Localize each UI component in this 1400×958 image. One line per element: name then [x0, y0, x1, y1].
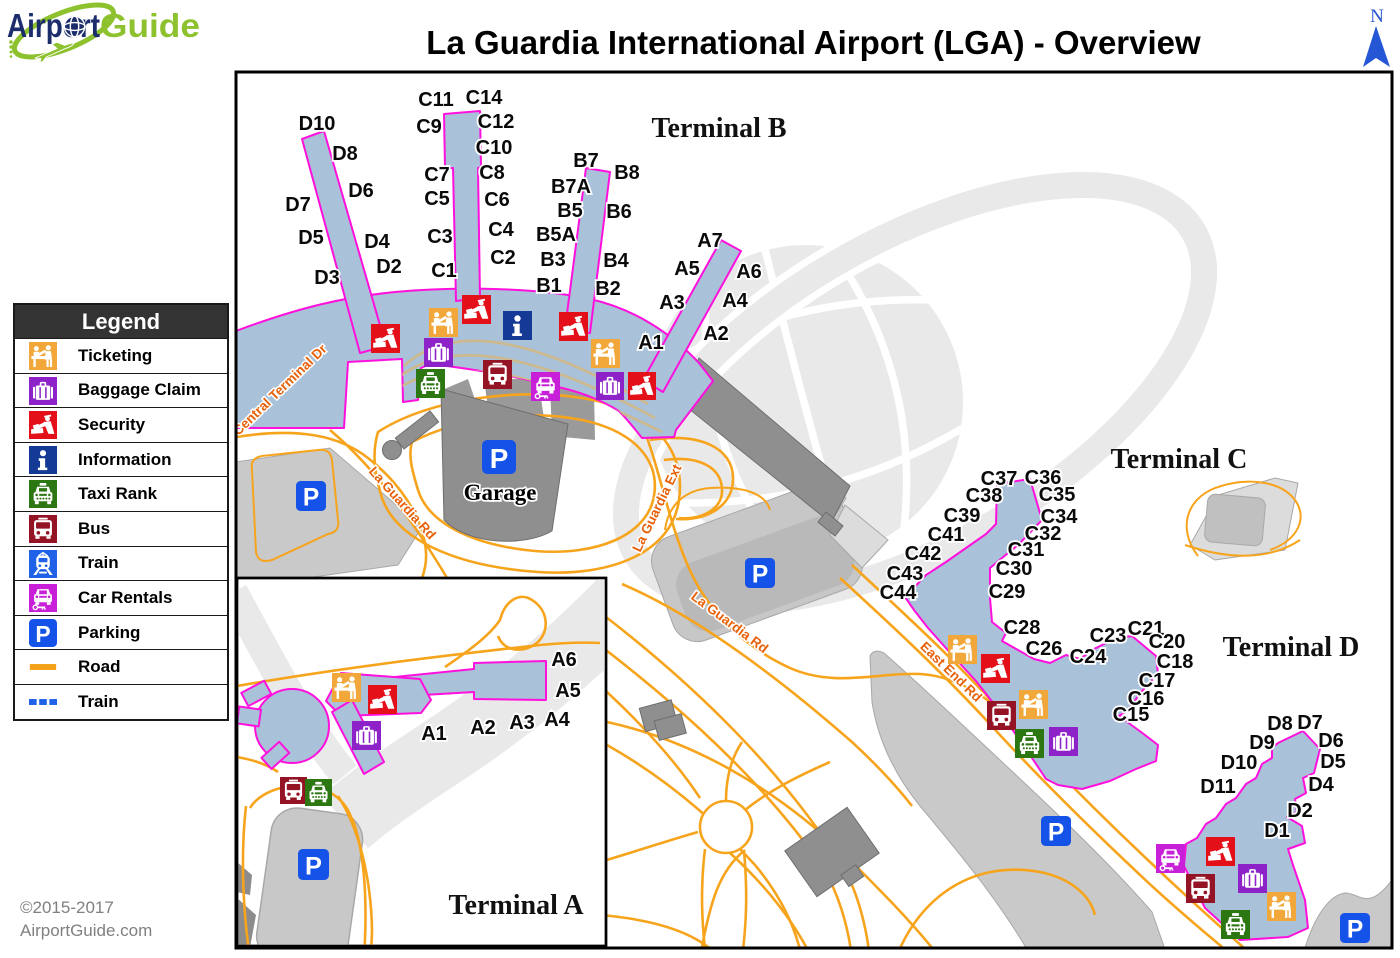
svg-text:B4: B4 [603, 250, 629, 272]
svg-text:Terminal B: Terminal B [651, 113, 786, 144]
svg-text:B8: B8 [614, 162, 640, 184]
svg-text:D10: D10 [1221, 752, 1258, 774]
svg-text:D1: D1 [1264, 820, 1290, 842]
svg-text:Terminal A: Terminal A [448, 890, 584, 921]
svg-text:C14: C14 [466, 87, 504, 109]
svg-text:D7: D7 [285, 194, 311, 216]
svg-text:C42: C42 [905, 543, 942, 565]
svg-text:C30: C30 [996, 558, 1033, 580]
svg-text:B2: B2 [595, 278, 621, 300]
svg-text:D6: D6 [348, 180, 374, 202]
svg-text:C10: C10 [476, 137, 513, 159]
svg-text:A1: A1 [638, 332, 664, 354]
svg-text:B7A: B7A [551, 176, 591, 198]
svg-text:N: N [1370, 6, 1384, 27]
svg-text:A7: A7 [697, 230, 723, 252]
svg-text:C29: C29 [989, 581, 1026, 603]
svg-text:D4: D4 [364, 231, 390, 253]
svg-text:D2: D2 [1287, 800, 1313, 822]
svg-text:D3: D3 [314, 267, 340, 289]
svg-text:D2: D2 [376, 256, 402, 278]
svg-text:A6: A6 [551, 649, 577, 671]
svg-text:C1: C1 [431, 260, 457, 282]
svg-text:C3: C3 [427, 226, 453, 248]
svg-text:D11: D11 [1200, 776, 1236, 798]
svg-text:C24: C24 [1070, 646, 1108, 668]
svg-text:C4: C4 [488, 219, 514, 241]
svg-text:C9: C9 [416, 116, 442, 138]
svg-text:C8: C8 [479, 162, 505, 184]
svg-text:C23: C23 [1090, 625, 1127, 647]
svg-text:Garage: Garage [464, 480, 537, 505]
svg-text:D4: D4 [1308, 774, 1334, 796]
svg-text:A4: A4 [544, 709, 570, 731]
svg-text:A2: A2 [703, 323, 729, 345]
svg-text:D10: D10 [299, 113, 336, 135]
svg-text:Terminal C: Terminal C [1111, 444, 1248, 475]
svg-text:B5: B5 [557, 200, 583, 222]
svg-text:A3: A3 [659, 292, 685, 314]
svg-text:C12: C12 [478, 111, 515, 133]
svg-text:C28: C28 [1004, 617, 1041, 639]
svg-text:B7: B7 [573, 150, 599, 172]
svg-text:A3: A3 [509, 712, 535, 734]
svg-text:D6: D6 [1318, 730, 1344, 752]
svg-text:A5: A5 [674, 258, 700, 280]
svg-text:C2: C2 [490, 247, 516, 269]
svg-text:C20: C20 [1149, 631, 1186, 653]
svg-text:A5: A5 [555, 680, 581, 702]
svg-text:D5: D5 [1320, 751, 1346, 773]
svg-text:A2: A2 [470, 717, 496, 739]
svg-text:Terminal D: Terminal D [1223, 632, 1360, 663]
svg-text:B1: B1 [536, 275, 562, 297]
svg-text:B5A: B5A [536, 224, 576, 246]
svg-text:C35: C35 [1039, 484, 1076, 506]
svg-text:C11: C11 [418, 89, 454, 111]
svg-text:B6: B6 [606, 201, 632, 223]
svg-text:D5: D5 [298, 227, 324, 249]
svg-text:B3: B3 [540, 249, 566, 271]
svg-text:C6: C6 [484, 189, 510, 211]
svg-text:C26: C26 [1026, 638, 1063, 660]
svg-text:C5: C5 [424, 188, 450, 210]
svg-text:C15: C15 [1113, 704, 1150, 726]
svg-text:D9: D9 [1249, 732, 1275, 754]
svg-text:C44: C44 [880, 582, 918, 604]
svg-text:A1: A1 [421, 723, 447, 745]
svg-text:A6: A6 [736, 261, 762, 283]
svg-text:C38: C38 [966, 485, 1003, 507]
svg-text:A4: A4 [722, 290, 748, 312]
svg-text:C7: C7 [424, 164, 450, 186]
svg-text:D8: D8 [332, 143, 358, 165]
